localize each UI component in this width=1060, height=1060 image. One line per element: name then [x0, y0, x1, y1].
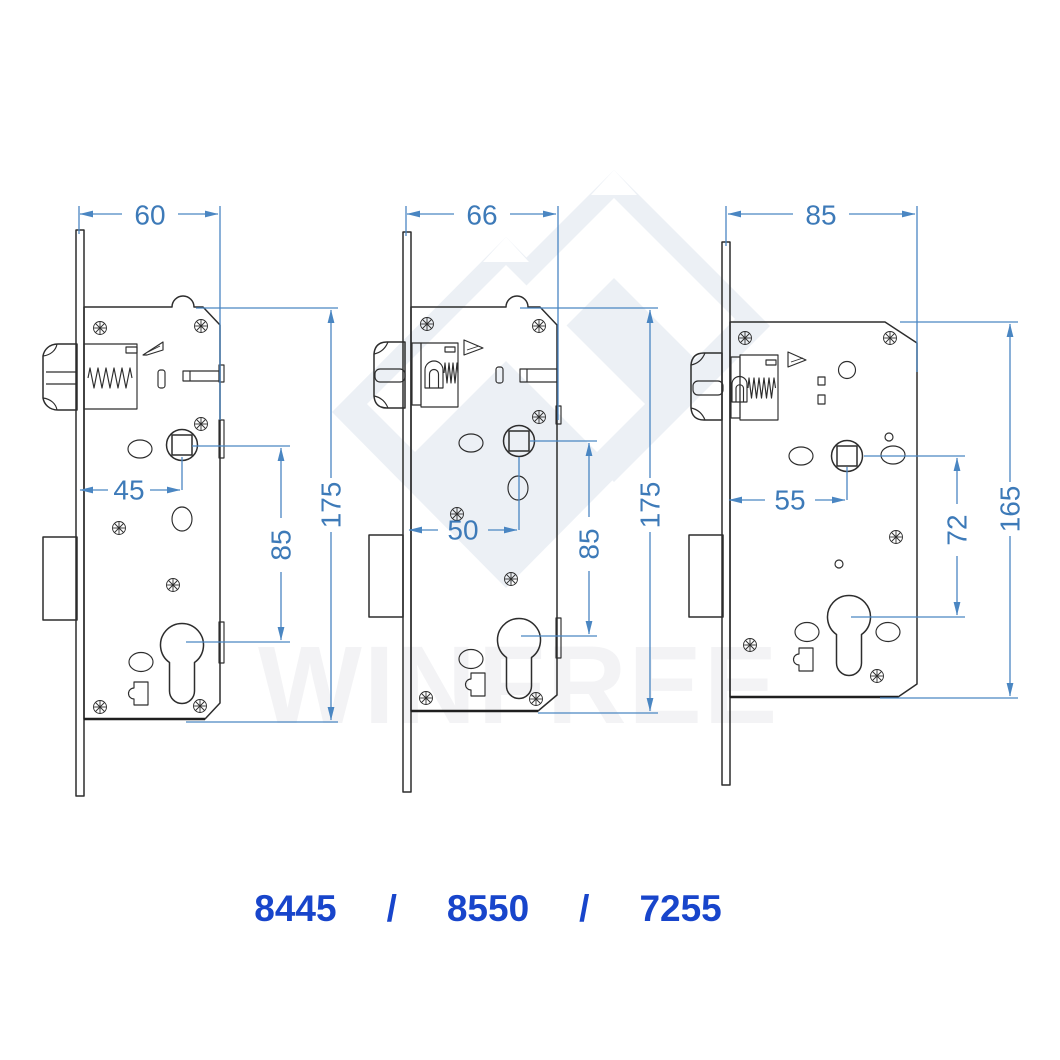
latch-spring-mechanism: [84, 342, 219, 409]
fixing-hole: [789, 447, 813, 465]
pin-hole: [885, 433, 893, 441]
stop-wedge: [788, 352, 806, 367]
fixing-hole: [881, 446, 905, 464]
deadbolt: [369, 535, 403, 617]
fixing-hole: [795, 623, 819, 642]
euro-cylinder-hole: [828, 596, 871, 676]
dim-backset-8550: 50: [447, 515, 478, 546]
dim-width-8550: 66: [466, 200, 497, 231]
lock-body: [84, 296, 220, 719]
model-number-8550: 8550: [447, 888, 529, 930]
dim-height-7255: 165: [995, 486, 1026, 533]
small-square-hole: [818, 395, 825, 404]
small-square-hole: [818, 377, 825, 385]
dim-width-8445: 60: [134, 200, 165, 231]
dim-backset-7255: 55: [774, 485, 805, 516]
dim-centers-8550: 85: [574, 528, 605, 559]
model-separator: /: [387, 888, 397, 930]
dim-height-8550: 175: [635, 482, 666, 529]
lock-8445-drawing: [43, 230, 224, 796]
deadbolt: [689, 535, 723, 617]
dim-centers-7255: 72: [942, 514, 973, 545]
dim-centers-8445: 85: [266, 529, 297, 560]
stop-wedge: [143, 342, 163, 355]
latch-spring-mechanism: [731, 352, 856, 420]
lock-dimension-diagram: WINFREE: [0, 0, 1060, 1060]
faceplate: [76, 230, 84, 796]
slot-hole: [158, 370, 165, 388]
latch-bolt: [43, 344, 77, 410]
fixing-hole: [172, 507, 192, 531]
euro-cylinder-hole: [161, 624, 204, 704]
fixing-hole: [129, 653, 153, 672]
round-hole: [839, 362, 856, 379]
dim-backset-8445: 45: [113, 475, 144, 506]
model-numbers-row: 8445 / 8550 / 7255: [0, 888, 976, 930]
hook-cutout: [794, 648, 814, 671]
pin-hole: [835, 560, 843, 568]
deadbolt: [43, 537, 77, 620]
fixing-hole: [876, 623, 900, 642]
model-separator: /: [579, 888, 589, 930]
fixing-hole: [128, 440, 152, 458]
model-number-8445: 8445: [254, 888, 336, 930]
dim-height-8445: 175: [316, 482, 347, 529]
slide-bar: [183, 371, 219, 381]
spindle-hole: [167, 430, 198, 461]
watermark-text: WINFREE: [258, 624, 779, 747]
spindle-hole: [832, 441, 863, 472]
hook-cutout: [129, 682, 149, 705]
dim-width-7255: 85: [805, 200, 836, 231]
model-number-7255: 7255: [639, 888, 721, 930]
